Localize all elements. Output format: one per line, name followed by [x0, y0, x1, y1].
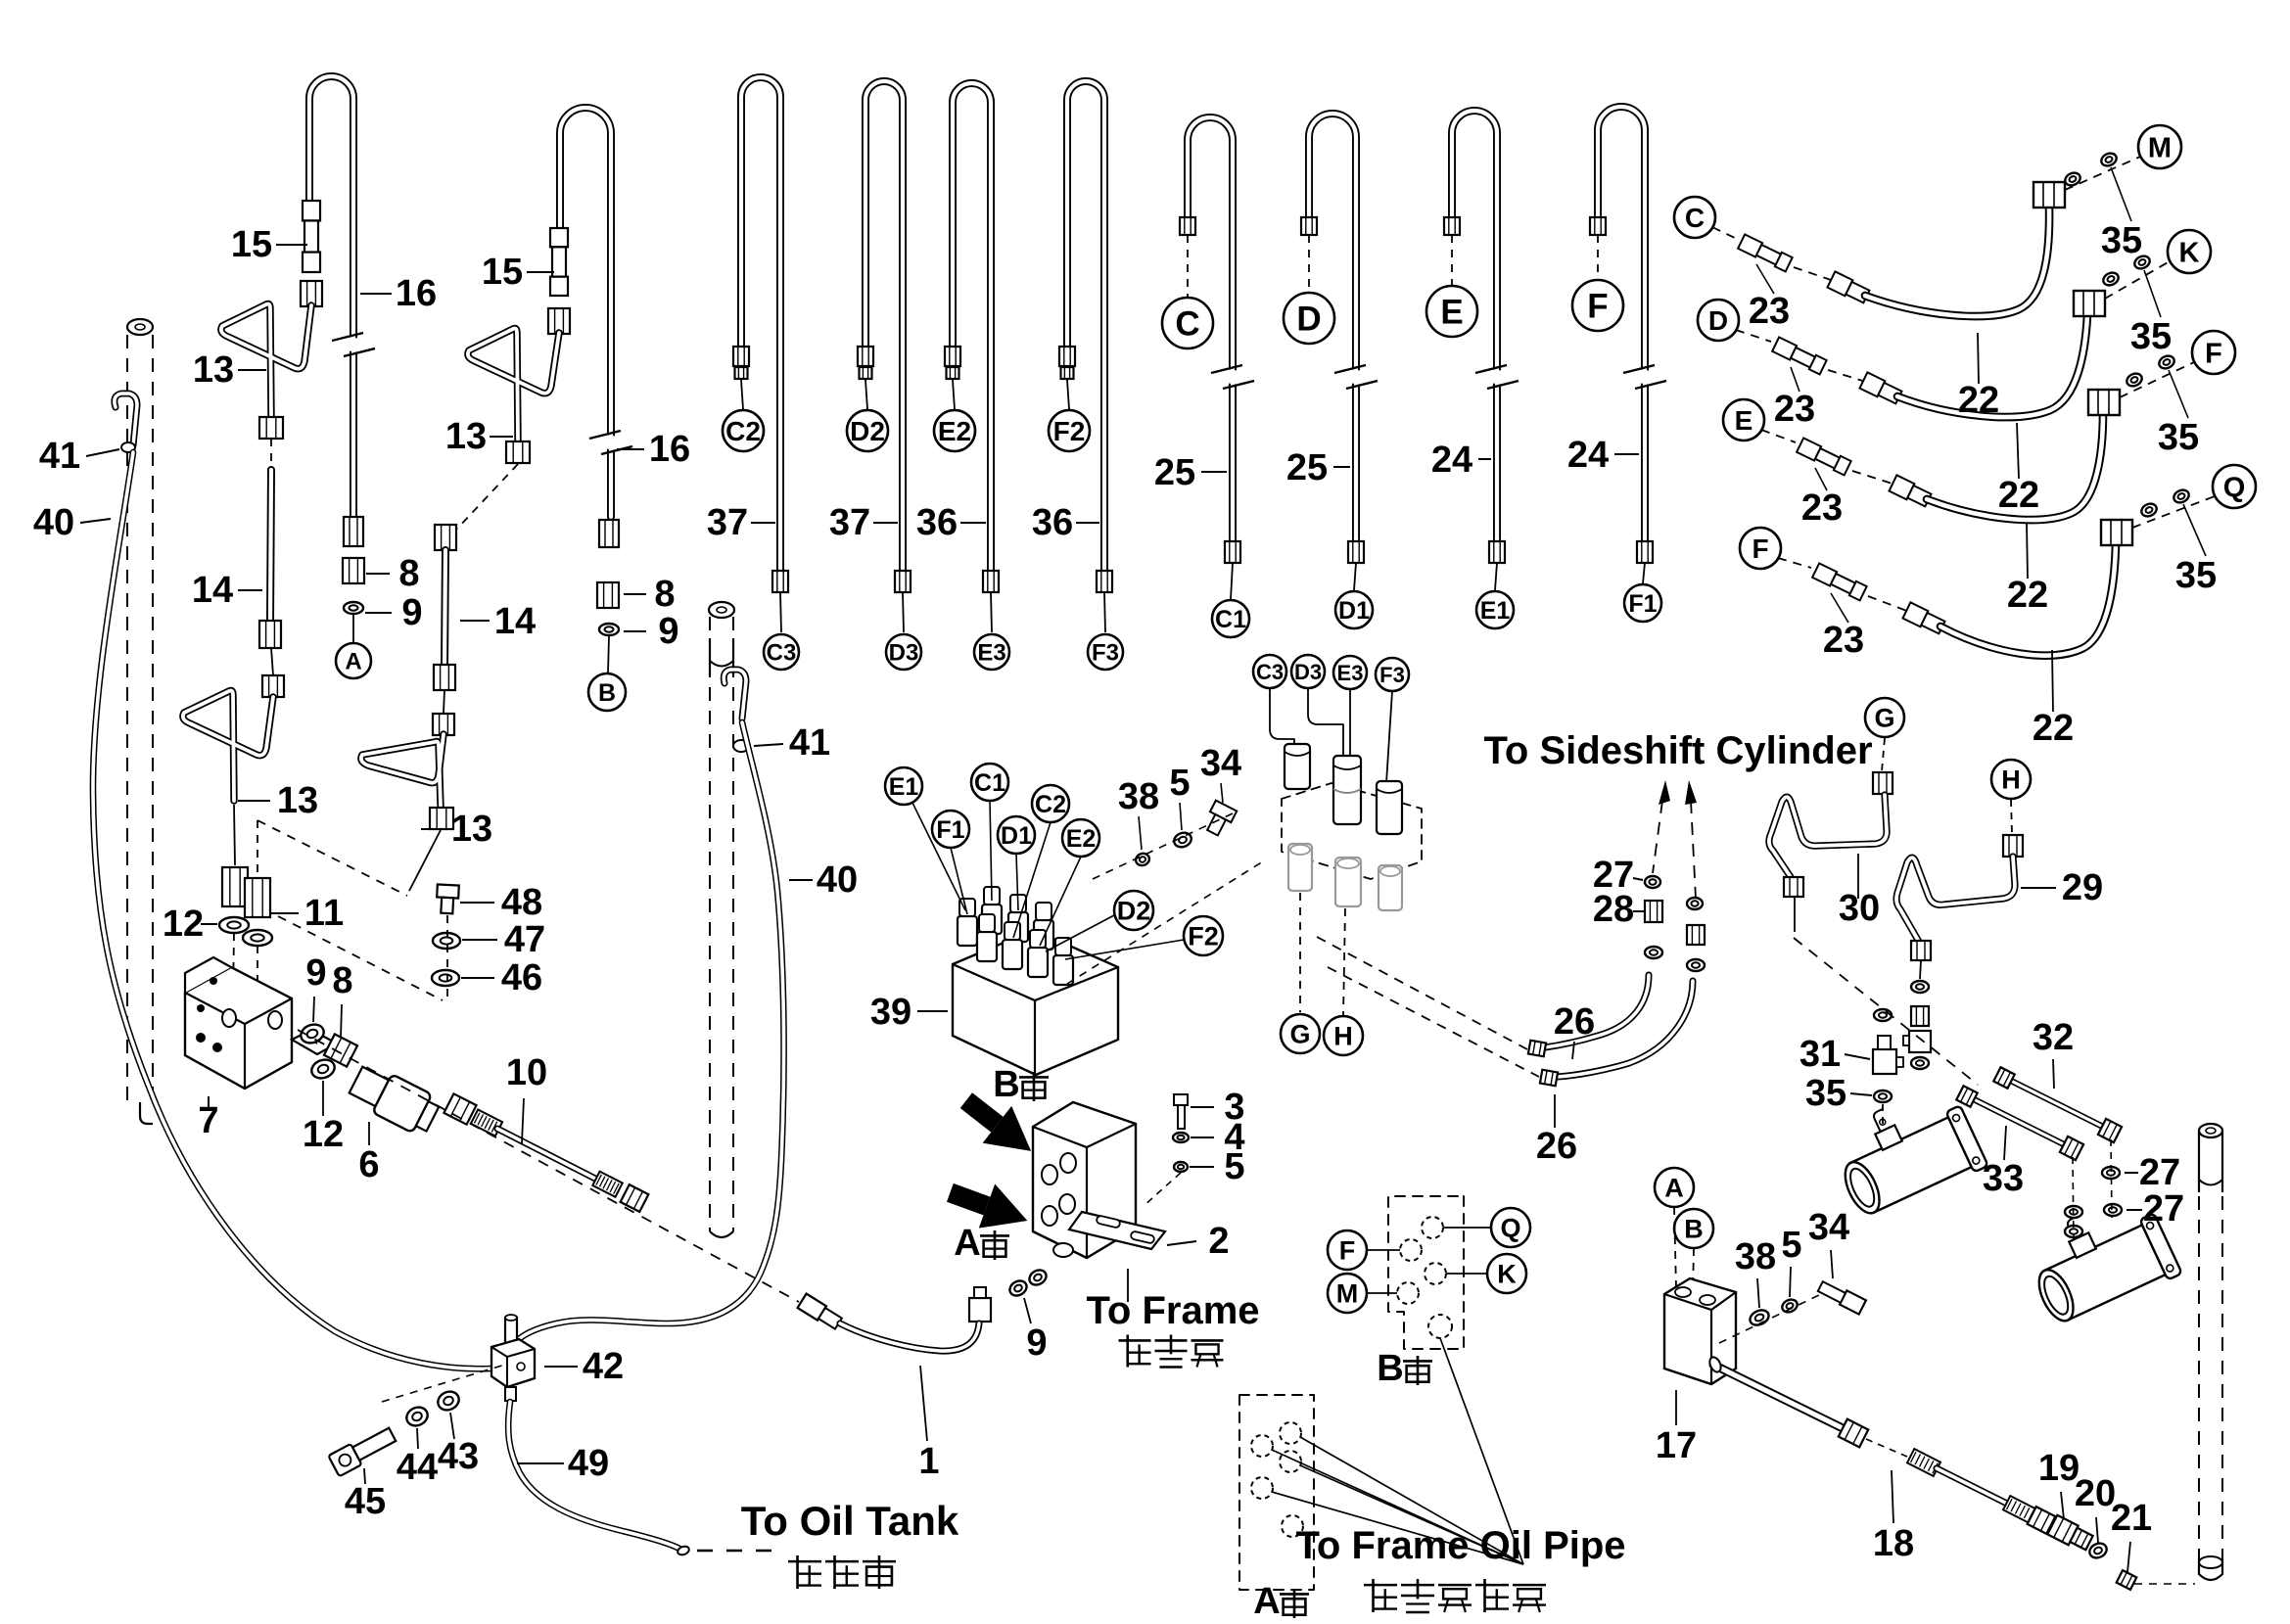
svg-text:33: 33	[1983, 1158, 2024, 1199]
svg-text:14: 14	[192, 570, 233, 611]
svg-text:18: 18	[1873, 1523, 1914, 1564]
svg-text:To Oil Tank: To Oil Tank	[741, 1498, 959, 1544]
svg-text:D: D	[1708, 305, 1728, 336]
svg-text:13: 13	[277, 780, 318, 821]
svg-text:E2: E2	[1066, 825, 1097, 853]
svg-text:16: 16	[649, 429, 690, 470]
svg-text:E3: E3	[977, 640, 1005, 667]
svg-text:15: 15	[482, 252, 523, 293]
svg-text:A: A	[1664, 1174, 1684, 1203]
svg-text:37: 37	[707, 502, 748, 543]
svg-text:43: 43	[438, 1436, 479, 1477]
svg-text:F: F	[2205, 338, 2222, 369]
svg-text:To Frame: To Frame	[1086, 1289, 1259, 1332]
svg-text:36: 36	[1032, 502, 1073, 543]
svg-text:M: M	[2148, 132, 2172, 163]
svg-text:34: 34	[1808, 1207, 1849, 1248]
svg-text:D2: D2	[850, 416, 885, 446]
svg-text:C1: C1	[974, 769, 1005, 797]
svg-text:38: 38	[1118, 776, 1159, 817]
svg-text:22: 22	[2007, 575, 2048, 616]
svg-text:C3: C3	[767, 640, 797, 667]
svg-text:21: 21	[2111, 1498, 2152, 1539]
svg-text:36: 36	[916, 502, 958, 543]
svg-text:E: E	[1440, 294, 1463, 332]
svg-text:42: 42	[583, 1346, 624, 1387]
svg-text:F3: F3	[1379, 663, 1405, 687]
svg-text:C1: C1	[1215, 606, 1246, 633]
svg-text:F2: F2	[1053, 416, 1086, 446]
svg-text:8: 8	[654, 574, 675, 615]
svg-text:C2: C2	[1035, 791, 1066, 818]
svg-text:E: E	[1735, 405, 1753, 436]
svg-text:D3: D3	[889, 640, 919, 667]
svg-text:F: F	[1587, 288, 1608, 326]
svg-text:6: 6	[358, 1144, 379, 1185]
svg-text:31: 31	[1799, 1034, 1841, 1075]
svg-text:39: 39	[870, 992, 911, 1033]
svg-text:F1: F1	[936, 816, 964, 844]
svg-text:D1: D1	[1001, 822, 1032, 850]
svg-text:27: 27	[2139, 1152, 2180, 1193]
svg-text:12: 12	[163, 904, 204, 945]
svg-text:F1: F1	[1628, 590, 1657, 618]
svg-text:B: B	[598, 679, 616, 707]
svg-text:24: 24	[1567, 435, 1609, 476]
svg-text:5: 5	[1169, 763, 1190, 804]
svg-text:C: C	[1175, 305, 1199, 344]
svg-text:19: 19	[2038, 1448, 2080, 1489]
svg-text:G: G	[1874, 704, 1894, 733]
svg-text:32: 32	[2033, 1017, 2074, 1058]
svg-text:38: 38	[1735, 1236, 1776, 1277]
svg-text:D: D	[1296, 301, 1321, 339]
svg-text:Q: Q	[2223, 472, 2246, 503]
svg-text:K: K	[1497, 1260, 1517, 1289]
svg-text:41: 41	[789, 722, 830, 764]
svg-text:B: B	[1684, 1215, 1704, 1244]
svg-text:C3: C3	[1256, 660, 1284, 684]
svg-text:27: 27	[2143, 1188, 2184, 1230]
svg-text:29: 29	[2062, 867, 2103, 908]
svg-text:49: 49	[568, 1443, 609, 1484]
svg-text:A: A	[1253, 1581, 1280, 1619]
svg-text:45: 45	[345, 1481, 386, 1522]
svg-text:9: 9	[401, 592, 422, 633]
svg-text:D2: D2	[1117, 897, 1151, 926]
svg-text:K: K	[2179, 237, 2200, 268]
svg-text:44: 44	[397, 1447, 438, 1488]
svg-text:B: B	[1377, 1348, 1403, 1389]
svg-text:F2: F2	[1188, 922, 1219, 951]
svg-text:35: 35	[2175, 555, 2217, 596]
svg-text:D3: D3	[1294, 660, 1322, 684]
svg-text:23: 23	[1749, 291, 1790, 332]
svg-text:14: 14	[494, 601, 536, 642]
svg-text:20: 20	[2075, 1473, 2116, 1514]
svg-text:13: 13	[445, 416, 487, 457]
svg-text:F: F	[1339, 1236, 1356, 1266]
svg-text:26: 26	[1554, 1001, 1595, 1043]
svg-text:35: 35	[1805, 1073, 1846, 1114]
svg-text:16: 16	[396, 273, 437, 314]
svg-text:C2: C2	[725, 416, 761, 446]
svg-text:40: 40	[817, 859, 858, 901]
svg-text:9: 9	[1026, 1322, 1047, 1364]
svg-text:35: 35	[2130, 316, 2172, 357]
svg-text:1: 1	[918, 1441, 939, 1482]
svg-text:A: A	[954, 1223, 980, 1264]
svg-text:22: 22	[1958, 380, 1999, 421]
svg-text:22: 22	[2033, 708, 2074, 749]
svg-text:B: B	[993, 1064, 1019, 1105]
svg-text:E1: E1	[1480, 597, 1511, 625]
svg-text:C: C	[1685, 203, 1705, 233]
svg-text:34: 34	[1200, 743, 1241, 784]
svg-text:35: 35	[2158, 417, 2199, 458]
svg-text:47: 47	[504, 919, 545, 960]
svg-text:25: 25	[1286, 447, 1328, 488]
svg-text:24: 24	[1431, 440, 1472, 481]
svg-text:A: A	[345, 649, 361, 675]
svg-text:40: 40	[33, 502, 74, 543]
svg-text:37: 37	[829, 502, 870, 543]
svg-text:12: 12	[303, 1114, 344, 1155]
svg-text:To Sideshift Cylinder: To Sideshift Cylinder	[1483, 729, 1872, 772]
svg-text:25: 25	[1154, 452, 1195, 493]
svg-text:F: F	[1752, 534, 1768, 564]
svg-text:2: 2	[1208, 1221, 1229, 1262]
svg-text:13: 13	[451, 809, 492, 850]
svg-text:9: 9	[305, 952, 326, 994]
svg-text:F3: F3	[1092, 640, 1119, 667]
svg-text:D1: D1	[1338, 597, 1370, 625]
svg-text:10: 10	[506, 1052, 547, 1093]
svg-text:G: G	[1289, 1020, 1310, 1049]
svg-text:28: 28	[1593, 889, 1634, 930]
svg-text:17: 17	[1656, 1425, 1697, 1466]
svg-text:41: 41	[39, 436, 80, 477]
svg-text:H: H	[2001, 766, 2021, 795]
svg-text:30: 30	[1839, 888, 1880, 929]
svg-text:To Frame Oil Pipe: To Frame Oil Pipe	[1295, 1524, 1625, 1567]
svg-text:8: 8	[398, 553, 419, 594]
svg-text:E3: E3	[1337, 661, 1364, 685]
svg-text:8: 8	[332, 960, 352, 1001]
svg-text:H: H	[1333, 1022, 1353, 1051]
svg-text:11: 11	[304, 893, 344, 934]
svg-text:5: 5	[1224, 1146, 1244, 1187]
svg-text:E1: E1	[889, 773, 919, 801]
svg-text:22: 22	[1998, 475, 2039, 516]
svg-text:23: 23	[1774, 389, 1815, 430]
svg-text:15: 15	[231, 224, 272, 265]
svg-text:5: 5	[1781, 1225, 1801, 1266]
svg-text:46: 46	[501, 957, 542, 998]
svg-text:9: 9	[658, 611, 678, 652]
svg-text:M: M	[1336, 1279, 1359, 1309]
svg-text:48: 48	[501, 882, 542, 923]
svg-text:E2: E2	[938, 416, 971, 446]
svg-text:35: 35	[2101, 220, 2142, 261]
svg-text:26: 26	[1536, 1126, 1577, 1167]
svg-text:Q: Q	[1500, 1214, 1520, 1243]
svg-text:23: 23	[1823, 620, 1864, 661]
svg-text:23: 23	[1801, 487, 1843, 529]
svg-text:13: 13	[193, 349, 234, 391]
